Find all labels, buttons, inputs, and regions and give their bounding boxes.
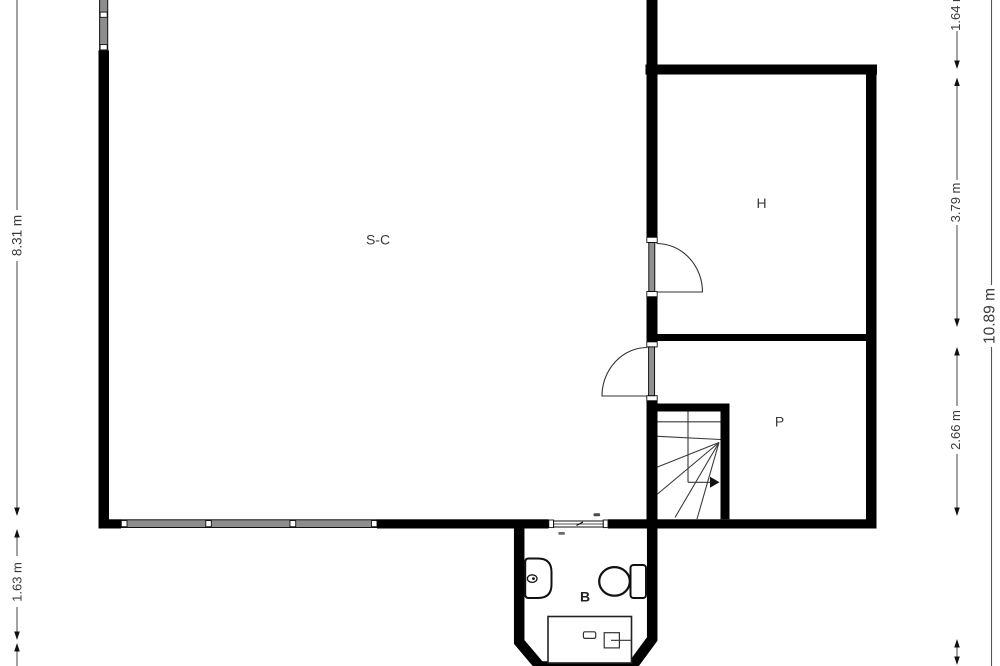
svg-text:2.66 m: 2.66 m [948,410,963,450]
svg-text:S-C: S-C [366,232,390,248]
svg-text:B: B [580,589,590,605]
svg-text:1.64 m: 1.64 m [948,0,963,31]
svg-text:3.79 m: 3.79 m [948,183,963,223]
svg-text:H: H [756,195,766,211]
svg-text:P: P [775,414,784,430]
svg-text:1.63 m: 1.63 m [10,562,25,602]
svg-text:8.31 m: 8.31 m [10,215,25,256]
svg-text:10.89 m: 10.89 m [982,288,999,344]
